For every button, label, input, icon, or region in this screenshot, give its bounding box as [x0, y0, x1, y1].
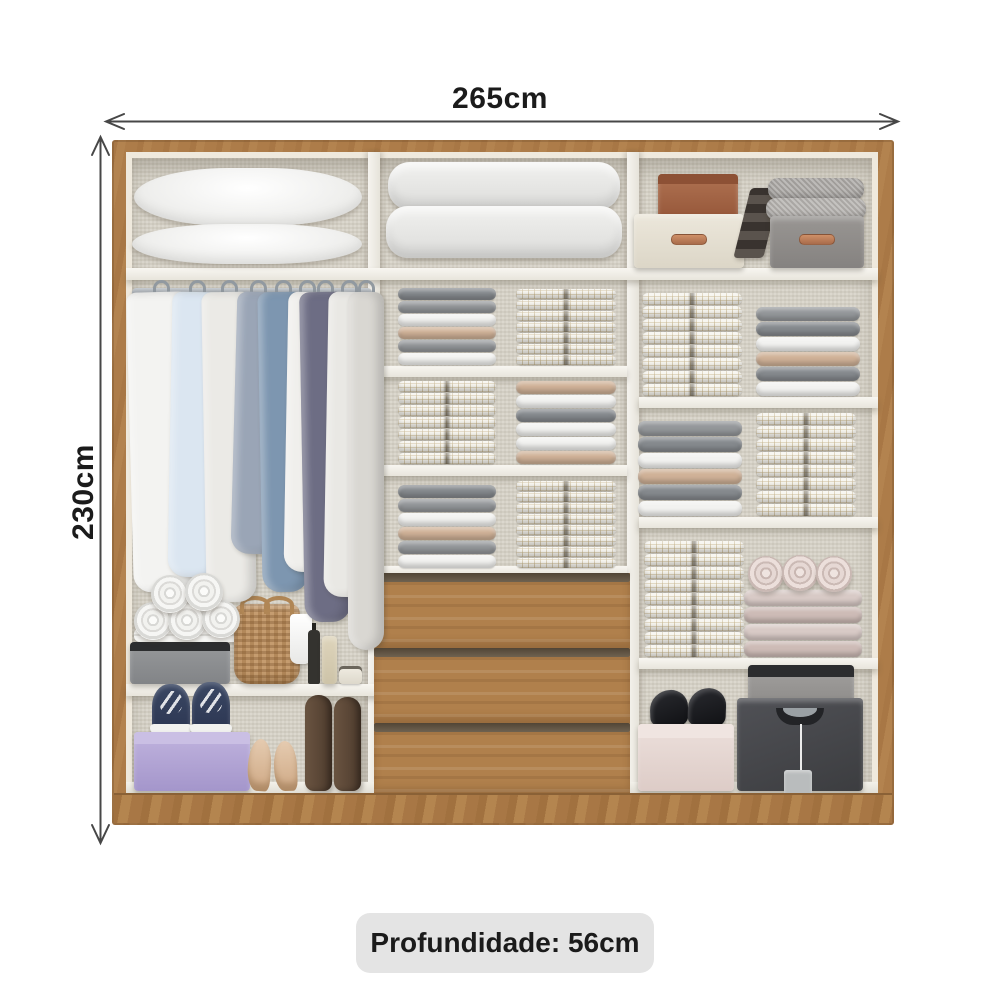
- folded-item: [398, 541, 496, 554]
- folded-item: [398, 485, 496, 498]
- folded-item: [756, 322, 860, 336]
- folded-item: [744, 624, 862, 640]
- folded-item: [756, 307, 860, 321]
- folded-stack: [638, 421, 742, 516]
- generated-items-layer: [126, 152, 878, 795]
- folded-stack: [744, 590, 862, 657]
- folded-stack: [516, 381, 616, 464]
- folded-item: [638, 501, 742, 516]
- folded-item: [516, 333, 616, 343]
- folded-item: [644, 645, 744, 657]
- folded-stack: [642, 293, 742, 396]
- depth-label-text: Profundidade: 56cm: [370, 927, 639, 959]
- width-dimension-arrow: [100, 111, 904, 133]
- folded-item: [516, 409, 616, 422]
- folded-item: [756, 478, 856, 490]
- folded-item: [398, 340, 496, 352]
- folded-item: [644, 541, 744, 553]
- folded-item: [744, 590, 862, 606]
- folded-item: [516, 547, 616, 557]
- folded-item: [516, 423, 616, 436]
- folded-item: [642, 384, 742, 396]
- folded-item: [756, 439, 856, 451]
- folded-item: [398, 441, 496, 452]
- folded-item: [644, 580, 744, 592]
- folded-item: [756, 367, 860, 381]
- rolled-towel: [185, 573, 223, 611]
- folded-item: [398, 405, 496, 416]
- wardrobe: [112, 140, 894, 825]
- folded-item: [398, 513, 496, 526]
- folded-item: [756, 504, 856, 516]
- folded-item: [516, 355, 616, 365]
- folded-item: [642, 345, 742, 357]
- folded-item: [398, 381, 496, 392]
- folded-item: [398, 327, 496, 339]
- folded-item: [398, 527, 496, 540]
- folded-item: [638, 485, 742, 500]
- folded-item: [516, 525, 616, 535]
- folded-item: [516, 481, 616, 491]
- folded-item: [516, 311, 616, 321]
- folded-item: [644, 593, 744, 605]
- height-dimension-arrow: [89, 129, 112, 851]
- folded-item: [516, 536, 616, 546]
- folded-item: [744, 641, 862, 657]
- folded-item: [756, 491, 856, 503]
- folded-item: [398, 393, 496, 404]
- folded-item: [516, 289, 616, 299]
- rolled-towel: [816, 556, 852, 592]
- folded-stack: [756, 307, 860, 396]
- folded-stack: [644, 541, 744, 657]
- folded-item: [642, 371, 742, 383]
- folded-stack: [516, 481, 616, 568]
- folded-item: [756, 382, 860, 396]
- folded-item: [516, 514, 616, 524]
- folded-stack: [398, 485, 496, 568]
- folded-item: [638, 437, 742, 452]
- folded-item: [398, 453, 496, 464]
- folded-item: [516, 395, 616, 408]
- folded-item: [644, 632, 744, 644]
- hanging-garment: [348, 292, 384, 650]
- folded-item: [516, 381, 616, 394]
- folded-item: [398, 429, 496, 440]
- folded-item: [744, 607, 862, 623]
- folded-item: [516, 322, 616, 332]
- folded-item: [642, 293, 742, 305]
- folded-item: [398, 499, 496, 512]
- wardrobe-base: [114, 793, 892, 823]
- folded-stack: [516, 289, 616, 365]
- folded-item: [756, 352, 860, 366]
- folded-item: [642, 358, 742, 370]
- folded-item: [756, 337, 860, 351]
- folded-item: [642, 332, 742, 344]
- folded-item: [516, 503, 616, 513]
- rolled-towel: [748, 556, 784, 592]
- folded-stack: [756, 413, 856, 516]
- folded-item: [756, 452, 856, 464]
- folded-item: [644, 606, 744, 618]
- rolled-towel: [782, 555, 818, 591]
- folded-item: [644, 554, 744, 566]
- folded-item: [398, 417, 496, 428]
- folded-item: [398, 288, 496, 300]
- folded-item: [756, 465, 856, 477]
- folded-item: [516, 300, 616, 310]
- product-diagram: 265cm 230cm Profundidade: 56cm: [0, 0, 1000, 1000]
- folded-item: [398, 555, 496, 568]
- folded-item: [516, 558, 616, 568]
- folded-item: [644, 619, 744, 631]
- folded-item: [398, 314, 496, 326]
- folded-item: [638, 469, 742, 484]
- folded-item: [398, 353, 496, 365]
- folded-stack: [398, 381, 496, 464]
- rolled-towel: [151, 575, 189, 613]
- folded-item: [644, 567, 744, 579]
- folded-item: [398, 301, 496, 313]
- folded-item: [756, 426, 856, 438]
- folded-item: [642, 306, 742, 318]
- folded-item: [516, 344, 616, 354]
- folded-item: [516, 451, 616, 464]
- folded-item: [756, 413, 856, 425]
- folded-stack: [398, 288, 496, 365]
- folded-item: [516, 492, 616, 502]
- folded-item: [638, 421, 742, 436]
- folded-item: [642, 319, 742, 331]
- depth-label: Profundidade: 56cm: [356, 913, 654, 973]
- folded-item: [638, 453, 742, 468]
- wardrobe-interior: [126, 152, 878, 795]
- folded-item: [516, 437, 616, 450]
